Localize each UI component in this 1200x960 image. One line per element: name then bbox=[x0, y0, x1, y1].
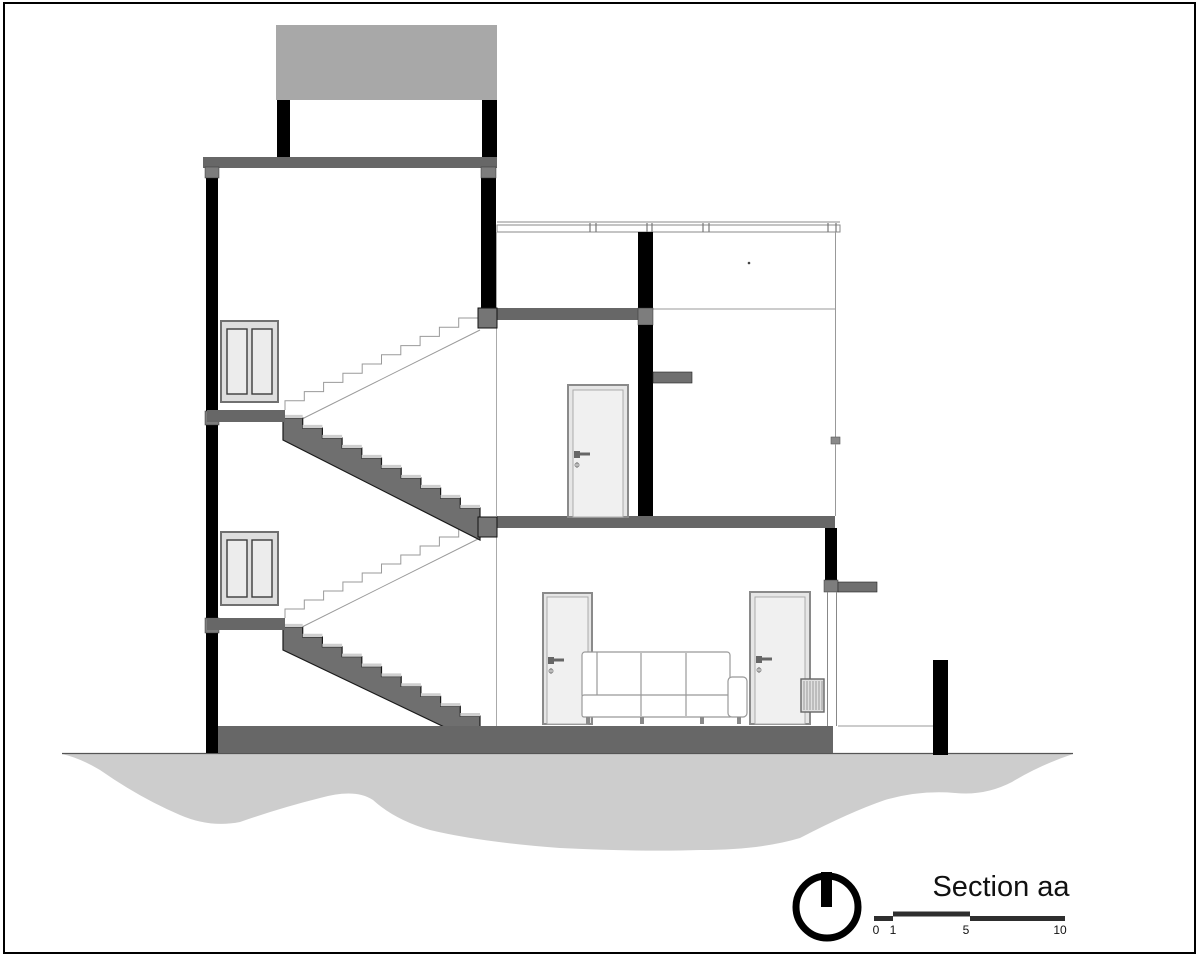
canopy bbox=[838, 582, 877, 592]
roof-slab bbox=[203, 157, 497, 168]
stair-flight-cut-upper bbox=[283, 417, 480, 541]
parapet-column bbox=[277, 100, 290, 157]
scale-label-1: 1 bbox=[890, 923, 897, 937]
lower-floor-slab bbox=[207, 618, 285, 630]
upper-floor-slab bbox=[207, 410, 285, 422]
parapet-column bbox=[482, 100, 497, 157]
stair-flight-elevation-upper bbox=[285, 318, 480, 424]
door-handle bbox=[548, 657, 554, 664]
scale-label-10: 10 bbox=[1053, 923, 1067, 937]
sofa bbox=[582, 652, 747, 724]
sofa-legs bbox=[586, 717, 741, 724]
window-upper bbox=[221, 321, 278, 402]
door-upper bbox=[568, 385, 628, 517]
stair-landing-upper bbox=[478, 308, 497, 328]
cut-mullion bbox=[825, 528, 837, 580]
section-drawing-sheet: Section aa 0 1 5 10 bbox=[0, 0, 1200, 960]
roof-parapet bbox=[276, 25, 497, 100]
drawing-dot bbox=[748, 262, 751, 265]
scale-label-0: 0 bbox=[873, 923, 880, 937]
ground-hatch bbox=[62, 754, 1073, 851]
ground-floor-slab bbox=[218, 726, 833, 753]
section-drawing: Section aa 0 1 5 10 bbox=[0, 0, 1200, 960]
cut-wall-right bbox=[481, 168, 496, 308]
door-handle bbox=[756, 656, 762, 663]
cut-wall-left bbox=[206, 168, 218, 753]
canopy-junction-block bbox=[824, 580, 838, 592]
radiator bbox=[801, 679, 824, 712]
stair-landing-lower bbox=[478, 517, 497, 537]
stair-stringer-line bbox=[292, 330, 480, 424]
roof-parapet-band bbox=[497, 225, 840, 232]
north-indicator-icon bbox=[796, 872, 858, 938]
door-handle bbox=[574, 451, 580, 458]
window-lower bbox=[221, 532, 278, 605]
cut-column bbox=[638, 232, 653, 308]
scale-label-5: 5 bbox=[963, 923, 970, 937]
scale-bar: 0 1 5 10 bbox=[873, 912, 1067, 938]
freestanding-post bbox=[933, 660, 948, 755]
left-tower bbox=[203, 25, 497, 753]
window-handle bbox=[831, 437, 840, 444]
mid-floor-slab bbox=[481, 308, 653, 320]
stair-stringer-line bbox=[292, 538, 480, 632]
cut-column bbox=[638, 325, 653, 516]
drawing-title: Section aa bbox=[932, 871, 1070, 903]
sofa-armrest bbox=[728, 677, 747, 717]
floor-slab bbox=[497, 516, 835, 528]
radiator-fins bbox=[804, 681, 822, 710]
stair-flight-elevation-lower bbox=[285, 528, 480, 632]
column-junction-block bbox=[638, 308, 653, 325]
cut-shelf bbox=[653, 372, 692, 383]
